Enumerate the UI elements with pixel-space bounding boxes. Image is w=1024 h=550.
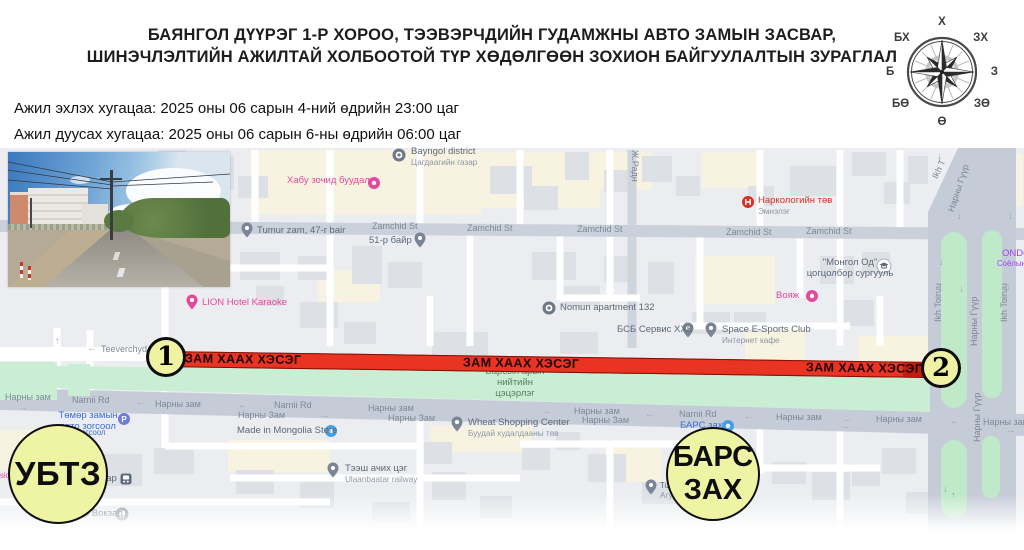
photo-power-lines (8, 152, 230, 287)
work-start-time: Ажил эхлэх хугацаа: 2025 оны 06 сарын 4-… (14, 96, 461, 122)
compass-north-label: Х (938, 16, 946, 28)
compass-rose: Х ЗХ З ЗӨ Ө БӨ Б БХ (886, 16, 998, 128)
compass-northwest-label: БХ (894, 32, 910, 44)
compass-southeast-label: ЗӨ (974, 98, 990, 110)
work-schedule: Ажил эхлэх хугацаа: 2025 оны 06 сарын 4-… (14, 96, 461, 148)
street-photo (8, 152, 230, 287)
title-line-1: БАЯНГОЛ ДҮҮРЭГ 1-Р ХОРОО, ТЭЭВЭРЧДИЙН ГУ… (72, 24, 912, 46)
compass-rose-icon (900, 30, 984, 114)
bars-zah-badge: БАРС ЗАХ (666, 427, 760, 521)
compass-west-label: Б (886, 66, 894, 78)
ubtz-badge-label: УБТЗ (15, 455, 101, 493)
compass-east-label: З (991, 66, 998, 78)
closure-label-3: ЗАМ ХААХ ХЭСЭГ (806, 360, 923, 376)
compass-northeast-label: ЗХ (973, 32, 988, 44)
closure-point-2-marker: 2 (921, 348, 961, 388)
title-line-2: ШИНЭЧЛЭЛТИЙН АЖИЛТАЙ ХОЛБООТОЙ ТҮР ХӨДӨЛ… (72, 46, 912, 68)
ubtz-badge: УБТЗ (8, 424, 108, 524)
bars-badge-line-2: ЗАХ (684, 474, 742, 507)
photo-barrier-stick (20, 262, 23, 278)
bars-badge-line-1: БАРС (673, 441, 753, 474)
page-title: БАЯНГОЛ ДҮҮРЭГ 1-Р ХОРОО, ТЭЭВЭРЧДИЙН ГУ… (72, 24, 912, 68)
map-bottom-fade (0, 494, 1024, 538)
closure-label-1: ЗАМ ХААХ ХЭСЭГ (185, 351, 302, 367)
closure-point-1-marker: 1 (146, 337, 186, 377)
compass-southwest-label: БӨ (892, 98, 909, 110)
compass-south-label: Ө (938, 116, 947, 128)
work-end-time: Ажил дуусах хугацаа: 2025 оны 06 сарын 6… (14, 122, 461, 148)
photo-barrier-stick (28, 266, 31, 280)
closure-label-2: ЗАМ ХААХ ХЭСЭГ (463, 355, 580, 371)
traffic-closure-poster: БАЯНГОЛ ДҮҮРЭГ 1-Р ХОРОО, ТЭЭВЭРЧДИЙН ГУ… (0, 0, 1024, 550)
